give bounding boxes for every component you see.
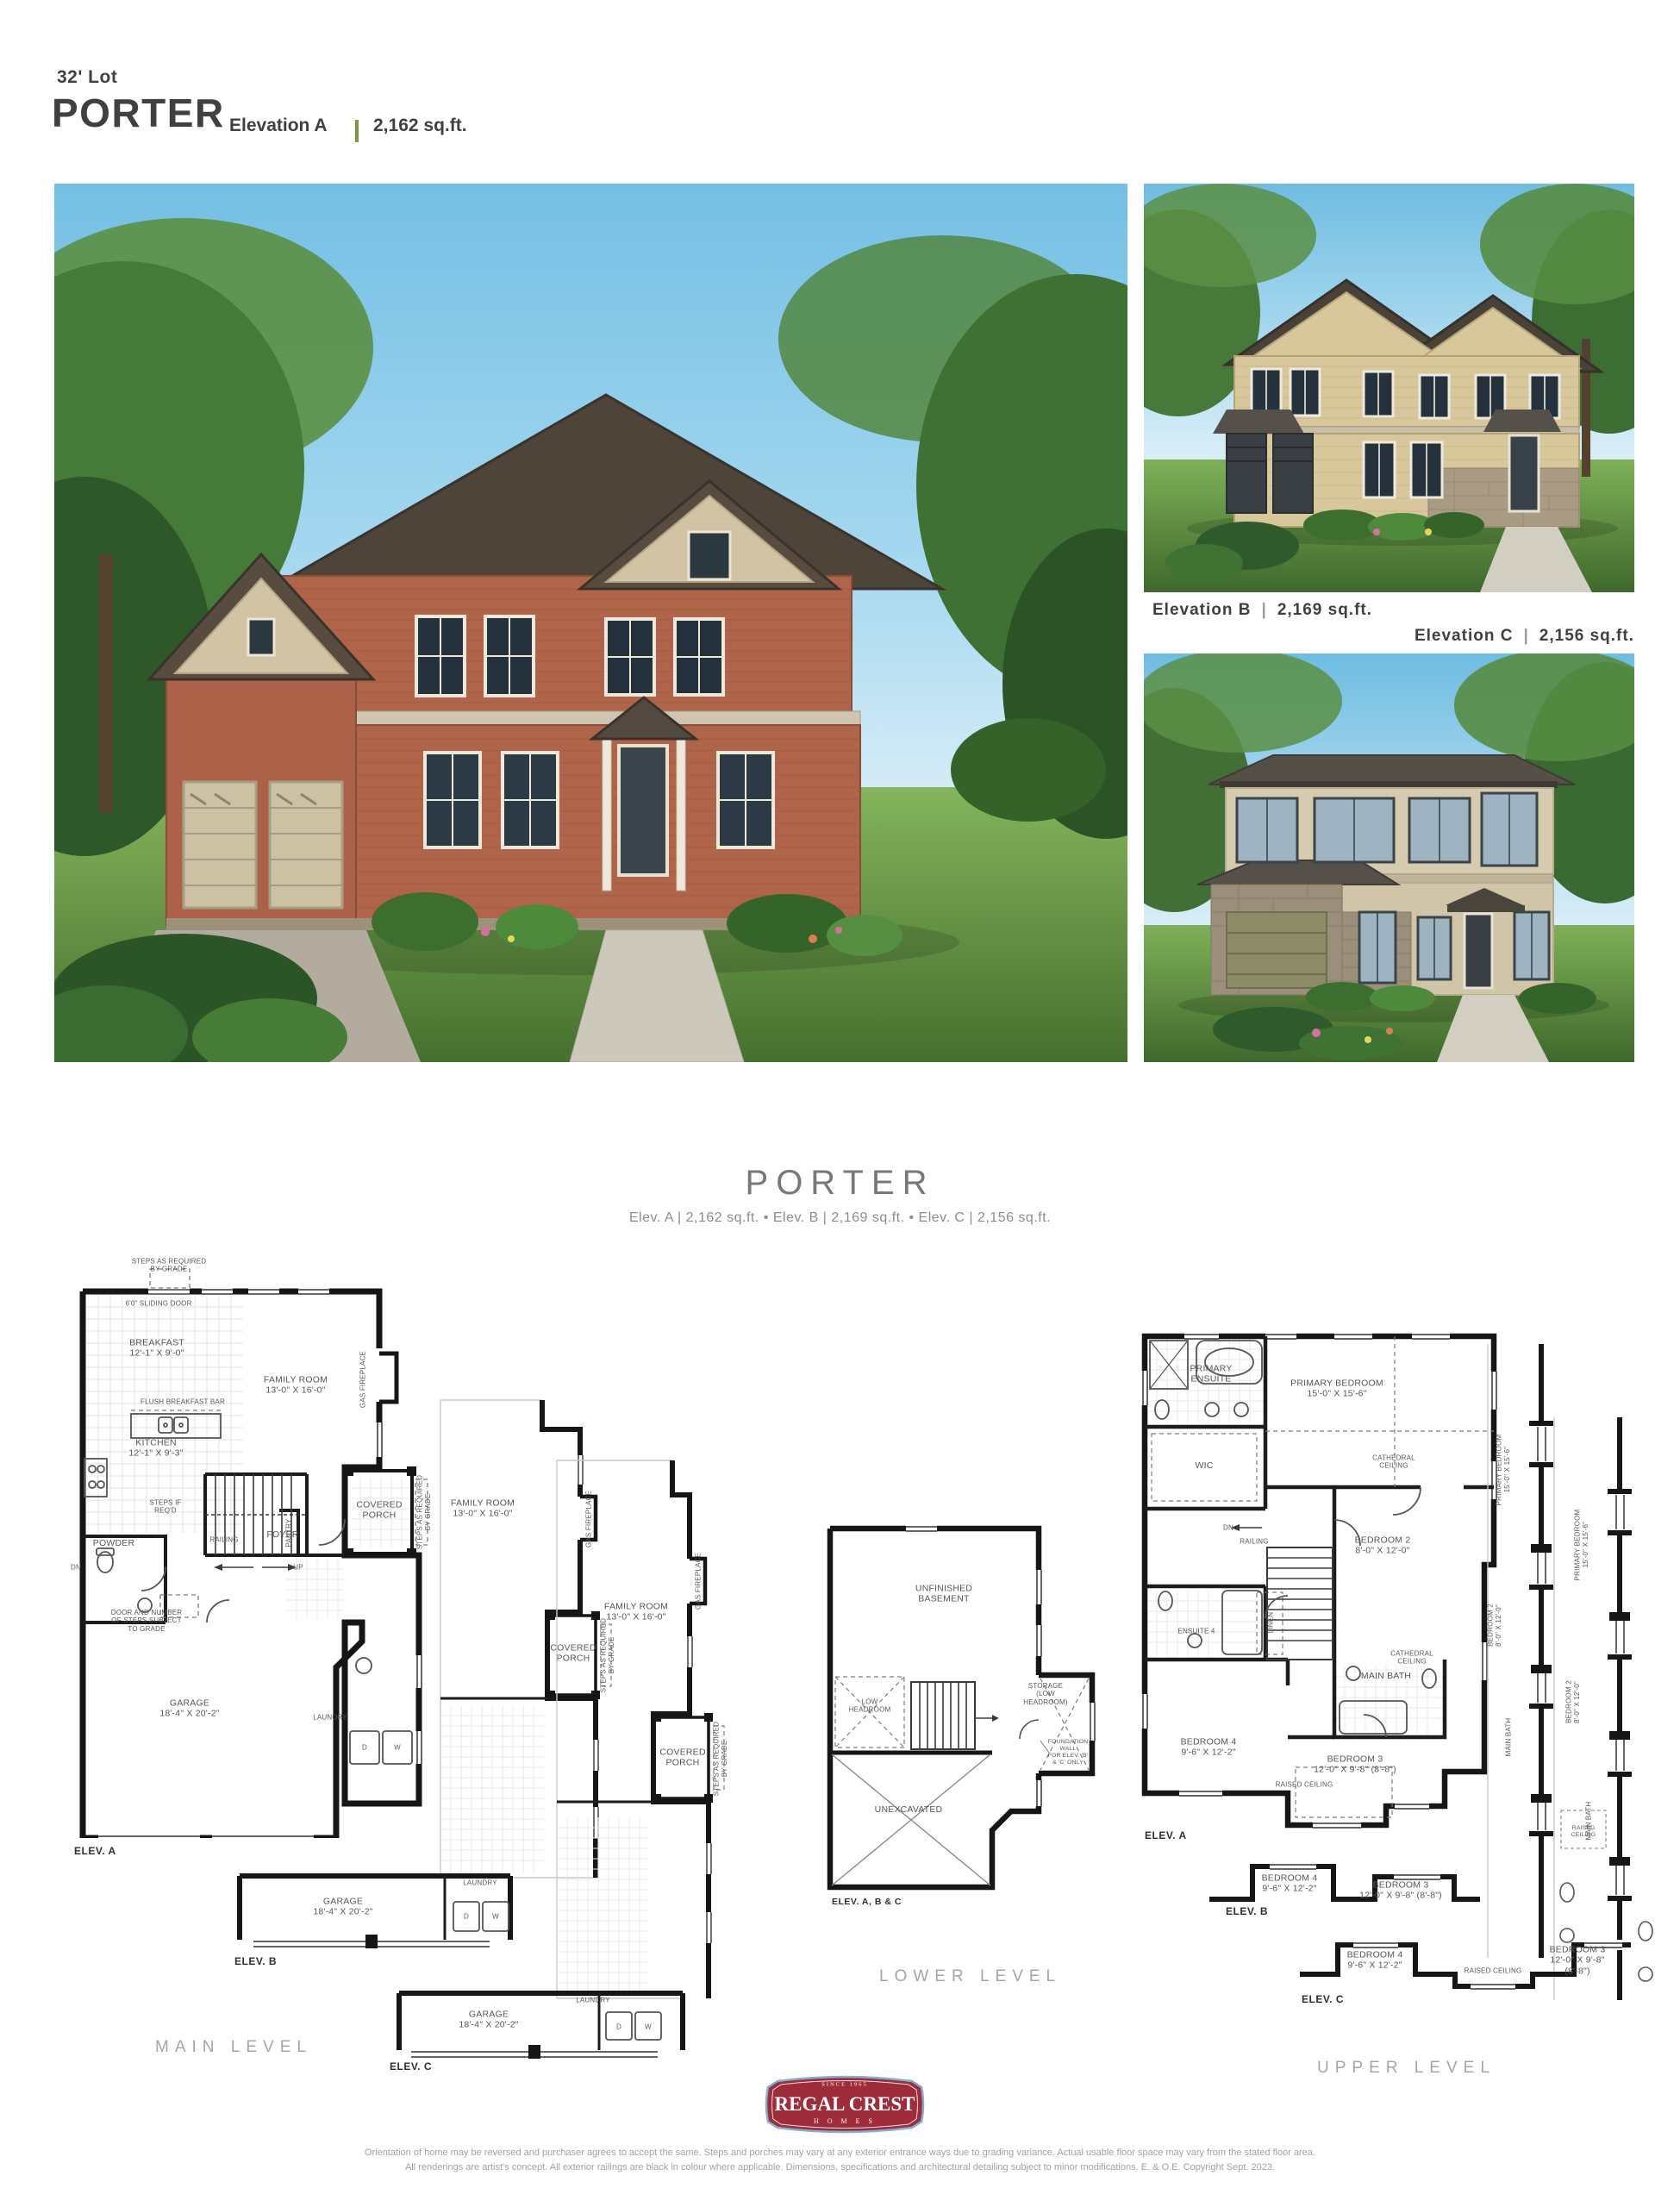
main-level-garage-elev-c: GARAGE 18'-4" X 20'-2" D W bbox=[392, 1990, 690, 2063]
room-label-primary-bedroom: PRIMARY BEDROOM 15'-0" X 15'-6" bbox=[1290, 1379, 1383, 1400]
gas-fireplace-walls bbox=[379, 1354, 397, 1402]
label-dryer-c: D bbox=[616, 2023, 621, 2030]
elevation-b-caption: Elevation B|2,169 sq.ft. bbox=[1152, 601, 1372, 620]
upper-level-elev-c-strip: BEDROOM 4 9'-6" X 12'-2" RAISED CEILING … bbox=[1293, 1929, 1638, 2005]
room-label-bedroom4-c: BEDROOM 4 9'-6" X 12'-2" bbox=[1347, 1950, 1403, 1972]
room-label-family-room-b: FAMILY ROOM 13'-0" X 16'-0" bbox=[451, 1498, 515, 1520]
room-label-unfinished-basement: UNFINISHED BASEMENT bbox=[915, 1584, 972, 1605]
disclaimer-line-1: Orientation of home may be reversed and … bbox=[0, 2146, 1680, 2160]
elevation-c-illustration bbox=[1144, 653, 1634, 1062]
entry bbox=[592, 697, 696, 891]
upper-level-caption: UPPER LEVEL bbox=[1317, 2059, 1496, 2078]
room-label-bedroom3: BEDROOM 3 12'-0" X 9'-8" (8'-8") bbox=[1314, 1754, 1396, 1776]
label-flush-breakfast-bar: FLUSH BREAKFAST BAR bbox=[141, 1397, 225, 1405]
logo-homes-text: H O M E S bbox=[814, 2117, 876, 2125]
room-label-primary-ensuite: PRIMARY ENSUITE bbox=[1190, 1364, 1232, 1385]
lot-size-label: 32' Lot bbox=[57, 67, 117, 88]
label-unexcavated: UNEXCAVATED bbox=[875, 1804, 943, 1815]
upper-elev-a-tag: ELEV. A bbox=[1145, 1829, 1187, 1841]
label-low-headroom: LOW HEADROOM bbox=[849, 1698, 891, 1715]
room-label-garage-c: GARAGE 18'-4" X 20'-2" bbox=[459, 2010, 518, 2031]
note-steps-side-c: STEPS AS REQUIRED BY GRADE bbox=[713, 1722, 729, 1797]
elevation-a-illustration bbox=[54, 184, 1127, 1062]
room-label-family-room: FAMILY ROOM 13'-0" X 16'-0" bbox=[264, 1375, 328, 1397]
label-raised-ceiling: RAISED CEILING bbox=[1276, 1780, 1333, 1788]
outer-walls bbox=[83, 1291, 419, 1838]
regal-crest-logo-badge: SINCE 1965 REGAL CREST H O M E S bbox=[763, 2074, 927, 2135]
label-primary-bedroom-b: PRIMARY BEDROOM 15'-0" X 15'-6" bbox=[1496, 1435, 1512, 1506]
room-label-garage: GARAGE 18'-4" X 20'-2" bbox=[159, 1698, 219, 1720]
label-dryer-b: D bbox=[464, 1912, 469, 1920]
elevation-b-illustration bbox=[1144, 184, 1634, 592]
room-label-bedroom2: BEDROOM 2 8'-0" X 12'-0" bbox=[1355, 1535, 1411, 1557]
main-level-plan-elev-a: STEPS AS REQUIRED BY GRADE 6'0" SLIDING … bbox=[76, 1252, 429, 1838]
elevation-c-caption-label: Elevation C bbox=[1415, 627, 1513, 645]
label-main-bath-b: MAIN BATH bbox=[1504, 1718, 1512, 1757]
label-railing-upper: RAILING bbox=[1240, 1537, 1268, 1545]
elevation-b-caption-label: Elevation B bbox=[1152, 601, 1251, 619]
note-foundation-wall: FOUNDATION WALL FOR ELEV. 'B' & 'C' ONLY bbox=[1046, 1739, 1090, 1766]
main-elev-c-tag: ELEV. C bbox=[390, 2060, 432, 2073]
stairs bbox=[911, 1682, 999, 1749]
room-label-bedroom3-c: BEDROOM 3 12'-0" X 9'-8" (8'-8") bbox=[1547, 1944, 1608, 1976]
caption-pipe: | bbox=[1251, 601, 1277, 619]
window-openings bbox=[98, 1286, 424, 1838]
elevation-a-rendering bbox=[54, 184, 1127, 1062]
room-label-garage-b: GARAGE 18'-4" X 20'-2" bbox=[313, 1897, 372, 1918]
note-door-and-steps: DOOR AND NUMBER OF STEPS SUBJECT TO GRAD… bbox=[111, 1609, 183, 1633]
main-elev-b-tag: ELEV. B bbox=[234, 1955, 277, 1967]
lower-elev-abc-tag: ELEV. A, B & C bbox=[832, 1897, 902, 1907]
room-label-family-room-c: FAMILY ROOM 13'-0" X 16'-0" bbox=[604, 1602, 668, 1623]
main-level-plan-c-drawing bbox=[552, 1455, 737, 2020]
upper-level-plan-elev-a: PRIMARY ENSUITE PRIMARY BEDROOM 15'-0" X… bbox=[1136, 1289, 1502, 1845]
label-raised-ceiling-c: RAISED CEILING bbox=[1465, 1966, 1522, 1974]
room-label-wic: WIC bbox=[1195, 1460, 1213, 1471]
room-label-ensuite4: ENSUITE 4 bbox=[1177, 1627, 1215, 1635]
label-raised-ceiling-c-col: RAISED CEILING bbox=[1564, 1825, 1603, 1839]
header-accent-divider bbox=[355, 120, 359, 142]
logo-since-text: SINCE 1965 bbox=[821, 2082, 867, 2088]
caption-pipe: | bbox=[1513, 627, 1539, 645]
label-primary-bedroom-c: PRIMARY BEDROOM 15'-0" X 15'-6" bbox=[1574, 1510, 1590, 1581]
room-label-covered-porch-c: COVERED PORCH bbox=[659, 1747, 705, 1769]
room-label-storage: STORAGE (LOW HEADROOM) bbox=[1023, 1682, 1068, 1706]
upper-level-elev-c-column: PRIMARY BEDROOM 15'-0" X 15'-6" BEDROOM … bbox=[1547, 1414, 1680, 2009]
elevation-b-caption-sqft: 2,169 sq.ft. bbox=[1277, 601, 1372, 619]
room-label-laundry-b: LAUNDRY bbox=[463, 1879, 497, 1886]
room-label-foyer: FOYER bbox=[266, 1529, 298, 1540]
disclaimer-line-2: All renderings are artist's concept. All… bbox=[0, 2160, 1680, 2175]
label-sliding-door: 6'0" SLIDING DOOR bbox=[125, 1299, 191, 1307]
label-linen: LINEN bbox=[1266, 1612, 1274, 1634]
unexcavated-x bbox=[832, 1754, 990, 1885]
label-railing: RAILING bbox=[209, 1535, 238, 1543]
label-dn: DN bbox=[71, 1563, 81, 1571]
main-level-garage-elev-b: GARAGE 18'-4" X 20'-2" LAUNDRY D W bbox=[233, 1873, 517, 1954]
house-c bbox=[1197, 755, 1575, 995]
logo-name-text: REGAL CREST bbox=[775, 2093, 915, 2115]
lower-level-caption: LOWER LEVEL bbox=[879, 1967, 1061, 1986]
label-washer-b: W bbox=[492, 1912, 499, 1920]
label-gas-fireplace-c: GAS FIREPLACE bbox=[694, 1553, 702, 1610]
room-label-breakfast: BREAKFAST 12'-1" X 9'-0" bbox=[129, 1338, 184, 1360]
plan-section-title: PORTER bbox=[0, 1164, 1680, 1203]
upper-elev-b-tag: ELEV. B bbox=[1226, 1905, 1268, 1917]
elevation-c-rendering bbox=[1144, 653, 1634, 1062]
lower-level-plan: UNFINISHED BASEMENT LOW HEADROOM STORAGE… bbox=[823, 1522, 1112, 1892]
main-elev-a-tag: ELEV. A bbox=[74, 1845, 116, 1857]
label-washer-c: W bbox=[645, 2023, 652, 2030]
label-cathedral-ceiling: CATHEDRAL CEILING bbox=[1372, 1454, 1415, 1471]
room-label-covered-porch: COVERED PORCH bbox=[356, 1500, 402, 1522]
regal-crest-logo: SINCE 1965 REGAL CREST H O M E S bbox=[763, 2074, 927, 2135]
room-label-powder: POWDER bbox=[93, 1538, 134, 1548]
brochure-page: { "header": {"lot":"32' Lot","name":"POR… bbox=[0, 0, 1680, 2207]
elevation-b-rendering bbox=[1144, 184, 1634, 592]
room-label-bedroom4-b: BEDROOM 4 9'-6" X 12'-2" bbox=[1262, 1873, 1318, 1895]
label-bedroom2-b: BEDROOM 2 8'-0" X 12'-0" bbox=[1487, 1604, 1503, 1647]
label-dryer: D bbox=[362, 1743, 367, 1751]
label-dn-upper: DN bbox=[1223, 1523, 1233, 1531]
note-steps-if-reqd: STEPS IF REQ'D bbox=[149, 1499, 181, 1516]
label-gas-fireplace: GAS FIREPLACE bbox=[359, 1351, 366, 1408]
room-label-kitchen: KITCHEN 12'-1" X 9'-3" bbox=[128, 1438, 183, 1460]
page-title: PORTER bbox=[52, 90, 225, 136]
plan-section-specs: Elev. A | 2,162 sq.ft. • Elev. B | 2,169… bbox=[0, 1210, 1680, 1226]
label-bedroom2-c: BEDROOM 2 8'-0" X 12'-0" bbox=[1565, 1680, 1582, 1723]
elevation-c-caption: Elevation C|2,156 sq.ft. bbox=[1121, 627, 1634, 646]
upper-elev-c-tag: ELEV. C bbox=[1302, 1993, 1344, 2005]
header-sqft-label: 2,162 sq.ft. bbox=[373, 116, 467, 136]
main-level-plan-elev-c-partial: FAMILY ROOM 13'-0" X 16'-0" GAS FIREPLAC… bbox=[552, 1455, 737, 2020]
note-steps-side: STEPS AS REQUIRED BY GRADE bbox=[416, 1475, 433, 1550]
room-label-laundry: LAUNDRY bbox=[313, 1713, 347, 1721]
room-label-main-bath: MAIN BATH bbox=[1361, 1671, 1411, 1681]
room-label-bedroom3-b: BEDROOM 3 12'-0" X 9'-8" (8'-8") bbox=[1359, 1880, 1442, 1902]
label-washer: W bbox=[394, 1743, 401, 1751]
main-level-caption: MAIN LEVEL bbox=[155, 2038, 312, 2057]
elevation-c-caption-sqft: 2,156 sq.ft. bbox=[1539, 627, 1634, 645]
room-label-bedroom4: BEDROOM 4 9'-6" X 12'-2" bbox=[1181, 1737, 1237, 1759]
header-elevation-label: Elevation A bbox=[229, 116, 328, 136]
label-up: UP bbox=[293, 1563, 303, 1571]
label-cathedral-ceiling-bath: CATHEDRAL CEILING bbox=[1390, 1650, 1433, 1666]
note-steps-as-required: STEPS AS REQUIRED BY GRADE bbox=[132, 1258, 207, 1274]
